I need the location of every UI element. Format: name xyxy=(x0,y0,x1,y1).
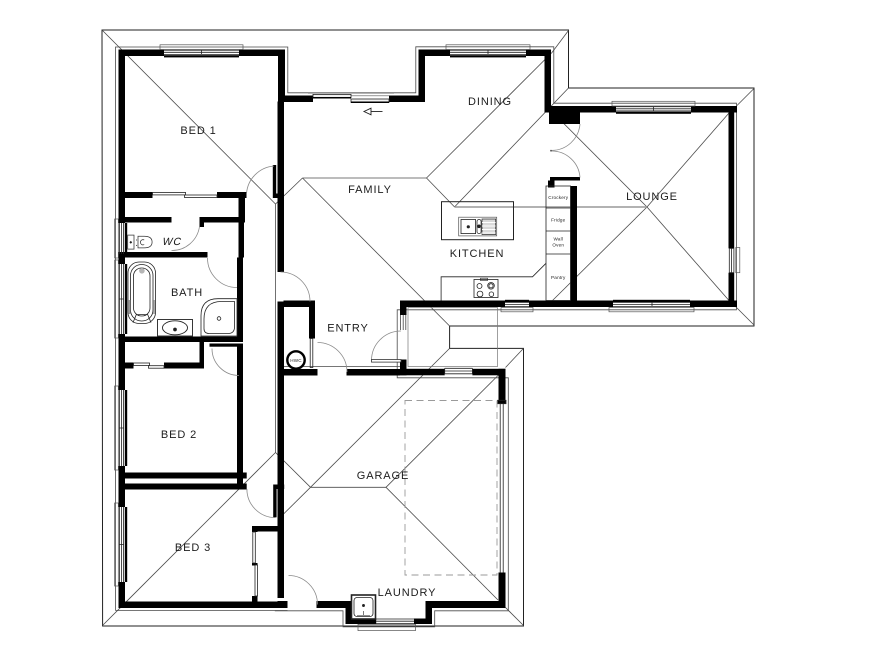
svg-text:BED 2: BED 2 xyxy=(161,429,197,441)
svg-text:BED 3: BED 3 xyxy=(175,542,211,554)
svg-text:Oven: Oven xyxy=(552,243,564,248)
svg-text:Pantry: Pantry xyxy=(551,275,566,280)
svg-text:HWC: HWC xyxy=(290,358,302,363)
svg-text:LOUNGE: LOUNGE xyxy=(626,191,678,203)
svg-text:FAMILY: FAMILY xyxy=(348,184,392,196)
svg-text:BED 1: BED 1 xyxy=(180,125,216,137)
svg-text:DINING: DINING xyxy=(468,96,512,108)
svg-text:Crockery: Crockery xyxy=(548,195,568,200)
svg-text:BATH: BATH xyxy=(171,287,203,299)
svg-text:Fridge: Fridge xyxy=(551,218,565,223)
svg-text:LAUNDRY: LAUNDRY xyxy=(378,587,437,599)
svg-text:Wall: Wall xyxy=(554,237,564,242)
svg-text:GARAGE: GARAGE xyxy=(357,470,409,482)
svg-text:KITCHEN: KITCHEN xyxy=(450,248,505,260)
svg-text:WC: WC xyxy=(161,236,183,248)
svg-text:ENTRY: ENTRY xyxy=(327,323,369,335)
